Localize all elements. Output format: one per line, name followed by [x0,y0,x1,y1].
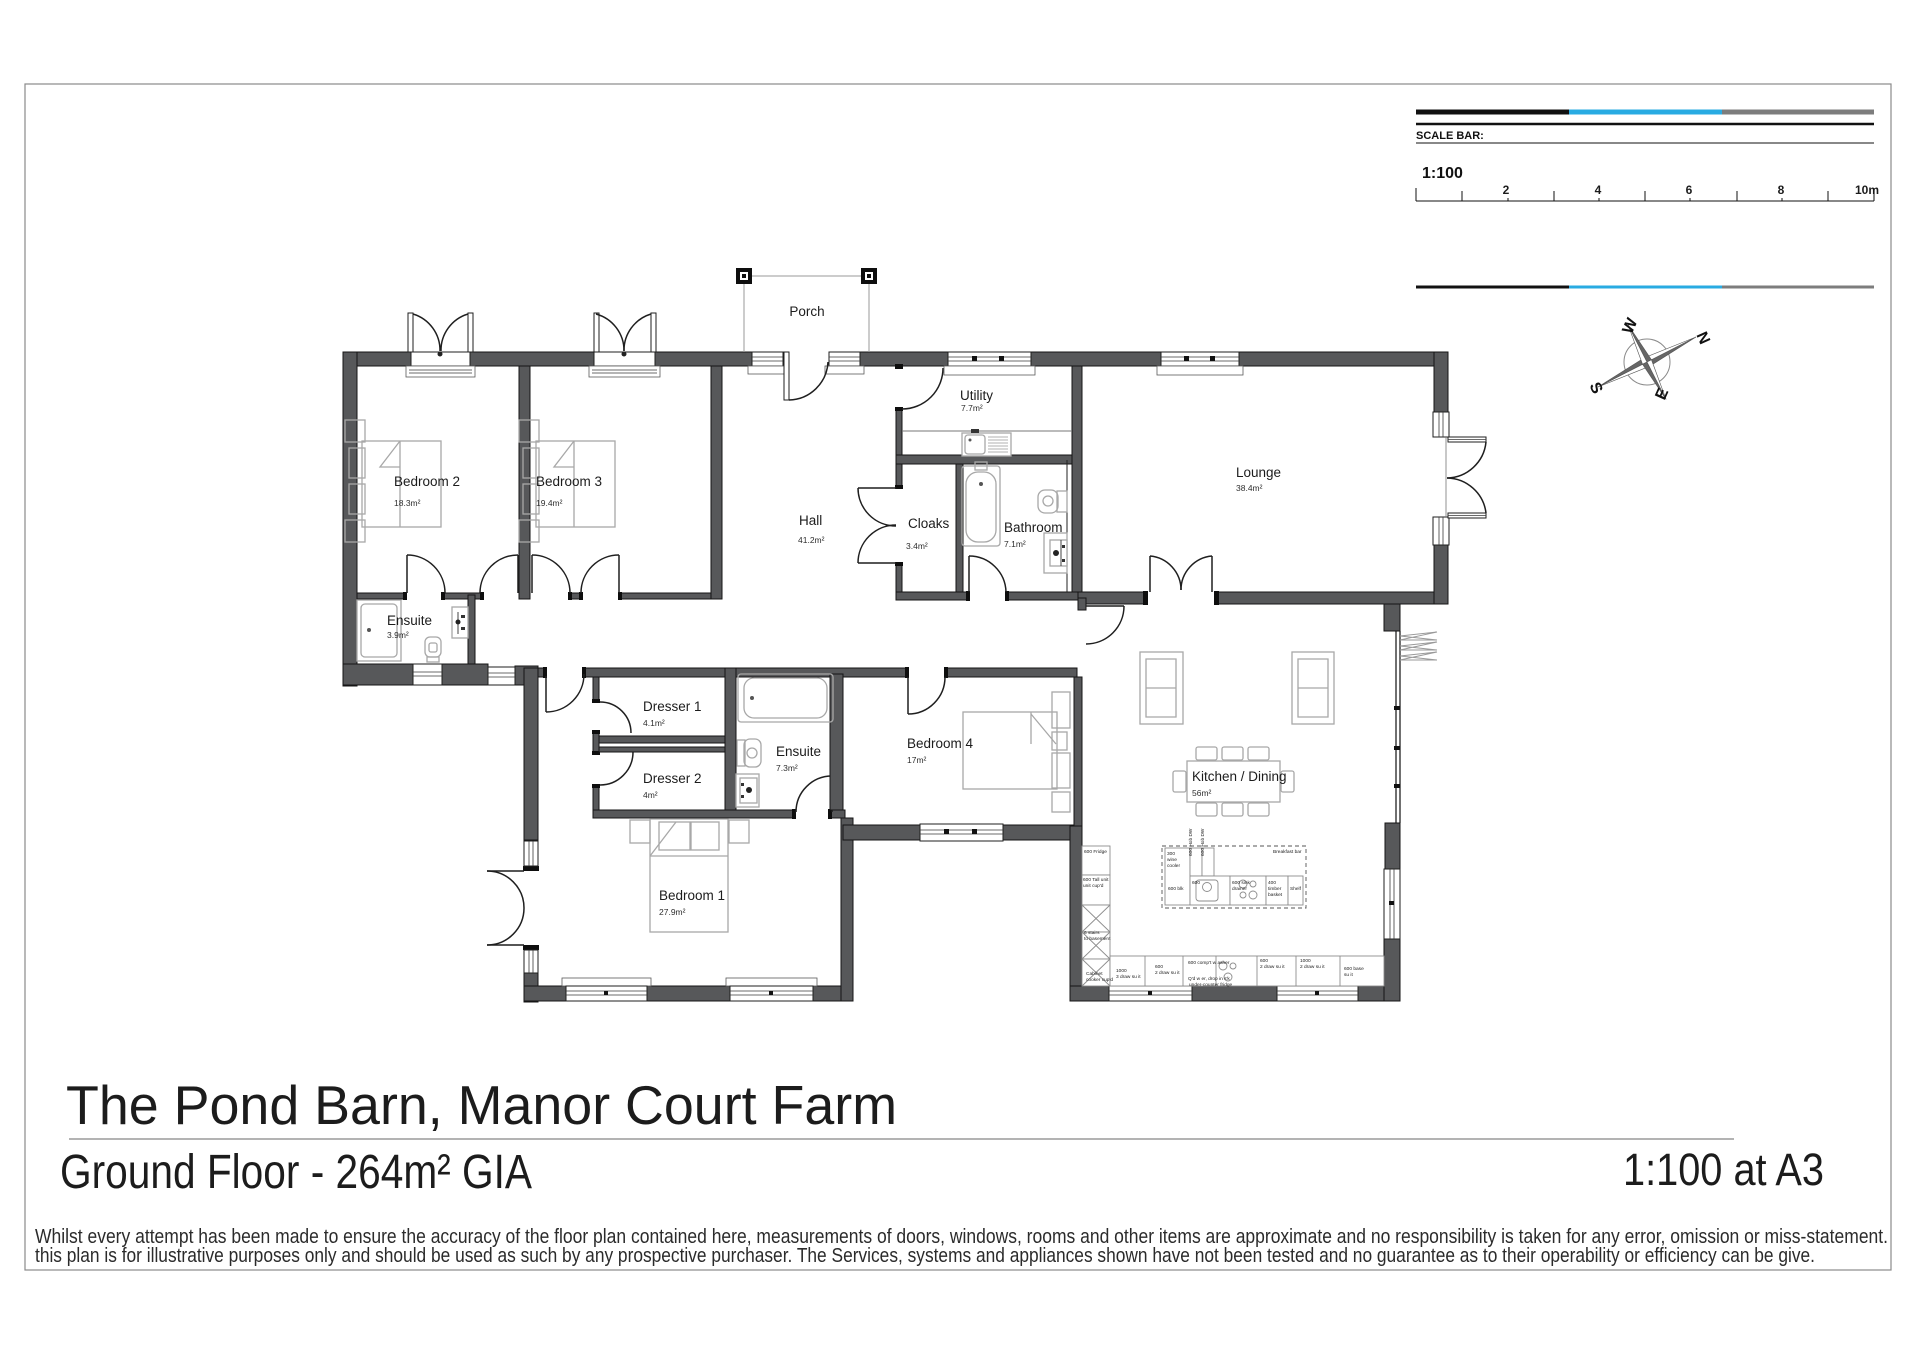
svg-text:600 Hob DW: 600 Hob DW [1188,828,1194,856]
svg-text:to basement: to basement [1084,936,1111,942]
svg-text:6: 6 [1686,183,1693,197]
svg-text:Breakfast bar: Breakfast bar [1273,849,1302,855]
svg-text:3 draw su it: 3 draw su it [1116,974,1141,980]
svg-text:600 sink: 600 sink [1232,880,1250,886]
svg-text:4: 4 [1595,183,1602,197]
svg-text:wine: wine [1167,857,1177,863]
svg-text:7.1m²: 7.1m² [1004,539,1026,549]
svg-text:Ensuite: Ensuite [387,613,432,628]
svg-text:600: 600 [1260,958,1268,964]
svg-text:cooker cup'd: cooker cup'd [1086,977,1113,983]
svg-text:Bedroom 4: Bedroom 4 [907,736,974,751]
svg-text:8: 8 [1778,183,1785,197]
svg-text:3.9m²: 3.9m² [387,630,409,640]
svg-text:2 draw su it: 2 draw su it [1260,964,1285,970]
svg-text:600 Tall unit: 600 Tall unit [1083,877,1109,883]
svg-text:Q'd w er, drop in s'k: Q'd w er, drop in s'k [1188,976,1230,982]
svg-text:Lounge: Lounge [1236,465,1281,480]
svg-text:drainer: drainer [1232,886,1247,892]
svg-text:basket: basket [1268,892,1283,898]
svg-text:6 stairs: 6 stairs [1084,930,1100,936]
svg-text:4.1m²: 4.1m² [643,718,665,728]
svg-text:4m²: 4m² [643,790,658,800]
svg-text:7.7m²: 7.7m² [961,403,983,413]
svg-text:Bedroom 2: Bedroom 2 [394,474,460,489]
svg-text:Bathroom: Bathroom [1004,520,1063,535]
svg-text:17m²: 17m² [907,755,927,765]
svg-text:Dresser 2: Dresser 2 [643,771,702,786]
svg-text:Dresser 1: Dresser 1 [643,699,702,714]
svg-text:18.3m²: 18.3m² [394,498,421,508]
svg-text:Hall: Hall [799,513,822,528]
svg-text:Cabinet: Cabinet [1086,971,1103,977]
svg-text:1000: 1000 [1116,968,1127,974]
svg-text:Utility: Utility [960,388,993,403]
svg-text:41.2m²: 41.2m² [798,535,825,545]
svg-text:600: 600 [1192,880,1200,886]
svg-text:under-counter fridge: under-counter fridge [1189,982,1233,988]
svg-text:300: 300 [1167,851,1175,857]
svg-text:27.9m²: 27.9m² [659,907,686,917]
svg-text:Cloaks: Cloaks [908,516,950,531]
svg-text:400: 400 [1268,880,1276,886]
svg-text:600 Fridge: 600 Fridge [1084,849,1107,855]
svg-text:1:100 at A3: 1:100 at A3 [1623,1144,1824,1195]
svg-text:600 comp't w asher: 600 comp't w asher [1188,960,1230,966]
svg-text:19.4m²: 19.4m² [536,498,563,508]
svg-text:cooler: cooler [1167,863,1180,869]
svg-text:1:100: 1:100 [1422,165,1463,182]
svg-text:2 draw su it: 2 draw su it [1300,964,1325,970]
svg-text:SCALE BAR:: SCALE BAR: [1416,130,1484,142]
svg-text:1000: 1000 [1300,958,1311,964]
svg-text:2: 2 [1503,183,1510,197]
svg-text:unit cup'd: unit cup'd [1083,883,1104,889]
svg-text:600: 600 [1155,964,1163,970]
svg-text:2 draw su it: 2 draw su it [1155,970,1180,976]
svg-text:7.3m²: 7.3m² [776,763,798,773]
svg-text:su it: su it [1344,972,1353,978]
svg-text:600 Hob DW: 600 Hob DW [1200,828,1206,856]
svg-text:38.4m²: 38.4m² [1236,483,1263,493]
svg-text:600 blk: 600 blk [1168,886,1184,892]
svg-text:Bedroom 1: Bedroom 1 [659,888,725,903]
svg-text:timber: timber [1268,886,1282,892]
svg-text:Kitchen / Dining: Kitchen / Dining [1192,769,1287,784]
svg-text:The Pond Barn, Manor Court Far: The Pond Barn, Manor Court Farm [66,1074,897,1136]
svg-text:3.4m²: 3.4m² [906,541,928,551]
svg-text:Ensuite: Ensuite [776,744,821,759]
svg-text:Ground Floor - 264m² GIA: Ground Floor - 264m² GIA [60,1146,532,1199]
svg-text:this plan is for illustrative: this plan is for illustrative purposes o… [35,1245,1815,1267]
svg-text:Bedroom 3: Bedroom 3 [536,474,602,489]
svg-text:56m²: 56m² [1192,788,1212,798]
svg-text:Porch: Porch [789,304,824,319]
svg-text:600 base: 600 base [1344,966,1364,972]
svg-text:10m: 10m [1855,183,1879,197]
svg-text:Shelf: Shelf [1290,886,1302,892]
